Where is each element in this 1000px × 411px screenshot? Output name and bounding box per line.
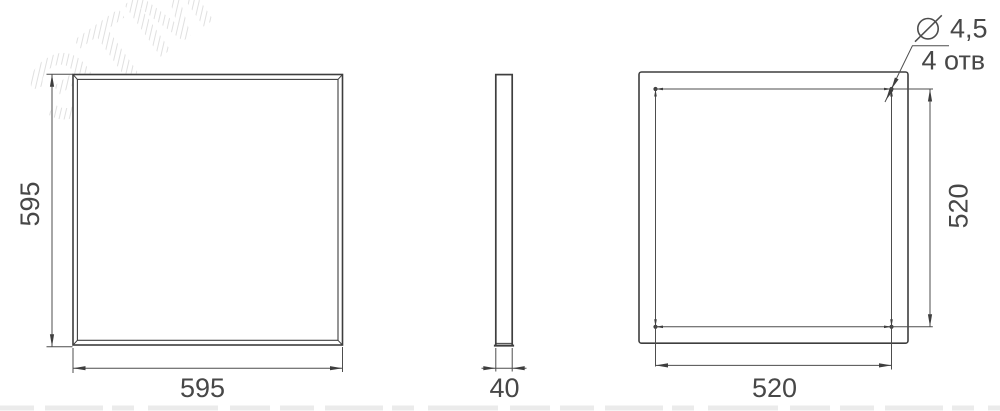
svg-text:4 отв: 4 отв (922, 46, 986, 76)
svg-text:595: 595 (15, 181, 45, 226)
svg-text:595: 595 (180, 373, 225, 403)
svg-text:4,5: 4,5 (950, 13, 988, 43)
svg-text:520: 520 (752, 373, 797, 403)
svg-text:40: 40 (489, 373, 519, 403)
svg-text:520: 520 (944, 183, 974, 228)
